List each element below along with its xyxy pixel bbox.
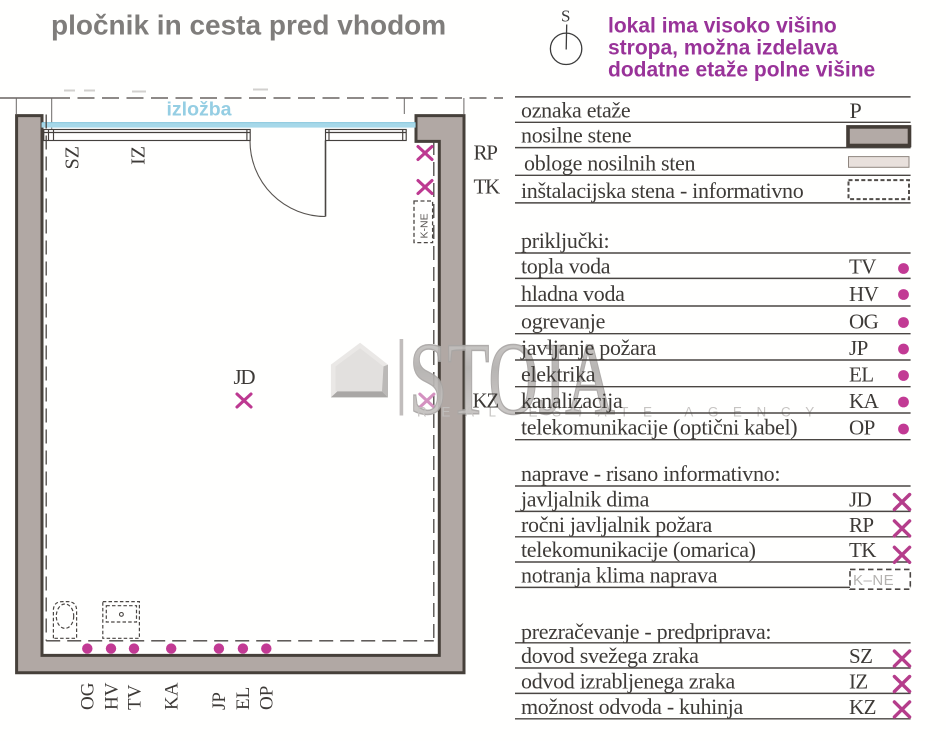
svg-text:hladna voda: hladna voda <box>521 281 625 306</box>
svg-text:JP: JP <box>849 336 868 360</box>
svg-text:pločnik in cesta pred vhodom: pločnik in cesta pred vhodom <box>51 10 446 41</box>
svg-text:OG: OG <box>78 682 99 710</box>
svg-text:KZ: KZ <box>849 695 876 719</box>
svg-text:SZ: SZ <box>849 644 872 668</box>
svg-text:RP: RP <box>849 513 874 537</box>
svg-text:odvod izrabljenega zraka: odvod izrabljenega zraka <box>521 668 735 693</box>
svg-text:možnost odvoda - kuhinja: možnost odvoda - kuhinja <box>521 694 743 719</box>
svg-text:SZ: SZ <box>62 146 84 169</box>
svg-text:elektrika: elektrika <box>521 362 596 387</box>
svg-text:TV: TV <box>849 254 876 278</box>
svg-text:P: P <box>850 98 862 123</box>
svg-text:naprave - risano informativno:: naprave - risano informativno: <box>521 461 780 486</box>
svg-text:JD: JD <box>849 487 872 511</box>
svg-text:ročni javljalnik požara: ročni javljalnik požara <box>521 512 713 537</box>
svg-text:IZ: IZ <box>128 146 150 165</box>
svg-text:priključki:: priključki: <box>521 228 609 253</box>
svg-text:K-NE: K-NE <box>419 213 431 238</box>
svg-text:nosilne stene: nosilne stene <box>521 123 631 148</box>
svg-text:OP: OP <box>257 686 278 710</box>
svg-text:obloge nosilnih sten: obloge nosilnih sten <box>524 150 696 175</box>
svg-text:KA: KA <box>849 389 880 413</box>
svg-text:JD: JD <box>234 365 256 389</box>
svg-text:TK: TK <box>849 538 876 562</box>
svg-text:KA: KA <box>162 682 183 710</box>
svg-text:telekomunikacije (omarica): telekomunikacije (omarica) <box>521 537 756 562</box>
svg-text:kanalizacija: kanalizacija <box>521 388 623 413</box>
svg-text:dovod svežega zraka: dovod svežega zraka <box>521 643 699 668</box>
svg-text:inštalacijska stena - informat: inštalacijska stena - informativno <box>521 178 804 203</box>
svg-text:notranja klima naprava: notranja klima naprava <box>521 562 718 587</box>
svg-text:topla voda: topla voda <box>521 253 611 278</box>
svg-text:IZ: IZ <box>849 669 868 693</box>
svg-text:EL: EL <box>233 687 254 710</box>
svg-text:OG: OG <box>849 310 879 334</box>
svg-text:K–NE: K–NE <box>853 572 894 589</box>
svg-text:KZ: KZ <box>473 389 499 413</box>
svg-text:javljalnik dima: javljalnik dima <box>520 486 650 511</box>
svg-text:dodatne etaže polne višine: dodatne etaže polne višine <box>608 59 875 82</box>
svg-text:stropa, možna izdelava: stropa, možna izdelava <box>608 37 838 60</box>
svg-text:JP: JP <box>209 692 230 710</box>
svg-text:OP: OP <box>849 416 875 440</box>
svg-text:telekomunikacije (optični kabe: telekomunikacije (optični kabel) <box>521 415 797 440</box>
svg-text:S: S <box>561 7 570 26</box>
svg-text:EL: EL <box>849 363 873 387</box>
svg-text:TK: TK <box>474 175 501 199</box>
svg-text:prezračevanje - predpriprava:: prezračevanje - predpriprava: <box>521 619 771 644</box>
svg-text:RP: RP <box>474 141 498 165</box>
svg-text:izložba: izložba <box>167 99 232 121</box>
svg-text:HV: HV <box>849 282 879 306</box>
svg-text:oznaka etaže: oznaka etaže <box>521 97 630 122</box>
svg-text:javljanje požara: javljanje požara <box>520 335 657 360</box>
svg-text:HV: HV <box>101 682 122 710</box>
svg-text:TV: TV <box>124 684 145 710</box>
svg-text:lokal ima visoko višino: lokal ima visoko višino <box>608 15 837 38</box>
svg-text:ogrevanje: ogrevanje <box>521 309 605 334</box>
